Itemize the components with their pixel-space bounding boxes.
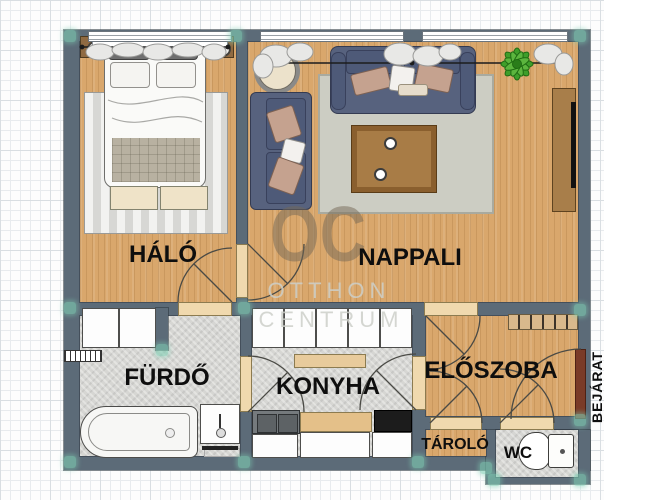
curtains [86,43,573,78]
corner-marker [574,304,586,316]
corner-marker [64,30,76,42]
watermark-line2: CENTRUM [259,307,404,333]
corner-marker [238,302,250,314]
watermark-line1: OTTHON [268,278,391,304]
floorplan-canvas: OC OTTHON CENTRUM HÁLÓ NAPPALI FÜRDŐ KON… [0,0,661,500]
corner-marker [64,302,76,314]
corner-marker [64,456,76,468]
corner-marker [574,30,586,42]
corner-marker [238,456,250,468]
plant [501,48,533,80]
label-entrance: BEJÁRAT [589,351,607,423]
label-kitchen: KONYHA [276,373,380,401]
door-leaf-kitchen-hallway [376,370,416,410]
label-hallway: ELŐSZOBA [424,357,557,385]
label-bathroom: FÜRDŐ [124,364,209,392]
label-bedroom: HÁLÓ [129,241,197,269]
watermark-monogram: OC [270,189,366,280]
door-leaf-hallway-wc [500,385,538,423]
corner-marker [574,474,586,486]
label-toilet: WC [504,443,532,463]
corner-marker [412,456,424,468]
label-living-room: NAPPALI [358,244,462,272]
duvet-folds [108,97,203,122]
door-leaf-bedroom-bathroom [194,264,232,302]
corner-marker [574,414,586,426]
corner-marker [488,474,500,486]
door-leaf-hallway-storage [430,386,467,423]
door-leaf-living-hallway [426,316,464,354]
corner-marker [480,462,492,474]
corner-marker [156,344,168,356]
corner-marker [230,30,242,42]
label-storage: TÁROLÓ [421,436,489,454]
